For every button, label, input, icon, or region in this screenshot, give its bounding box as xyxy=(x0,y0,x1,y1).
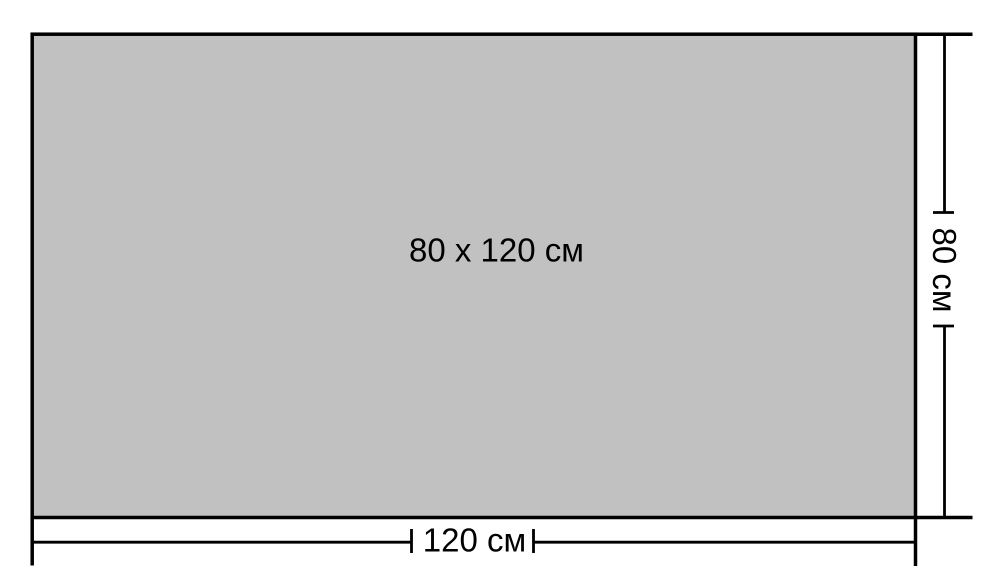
svg-text:80 x 120 см: 80 x 120 см xyxy=(409,232,584,269)
svg-text:120 см: 120 см xyxy=(423,522,526,559)
svg-text:80 см: 80 см xyxy=(926,227,963,312)
